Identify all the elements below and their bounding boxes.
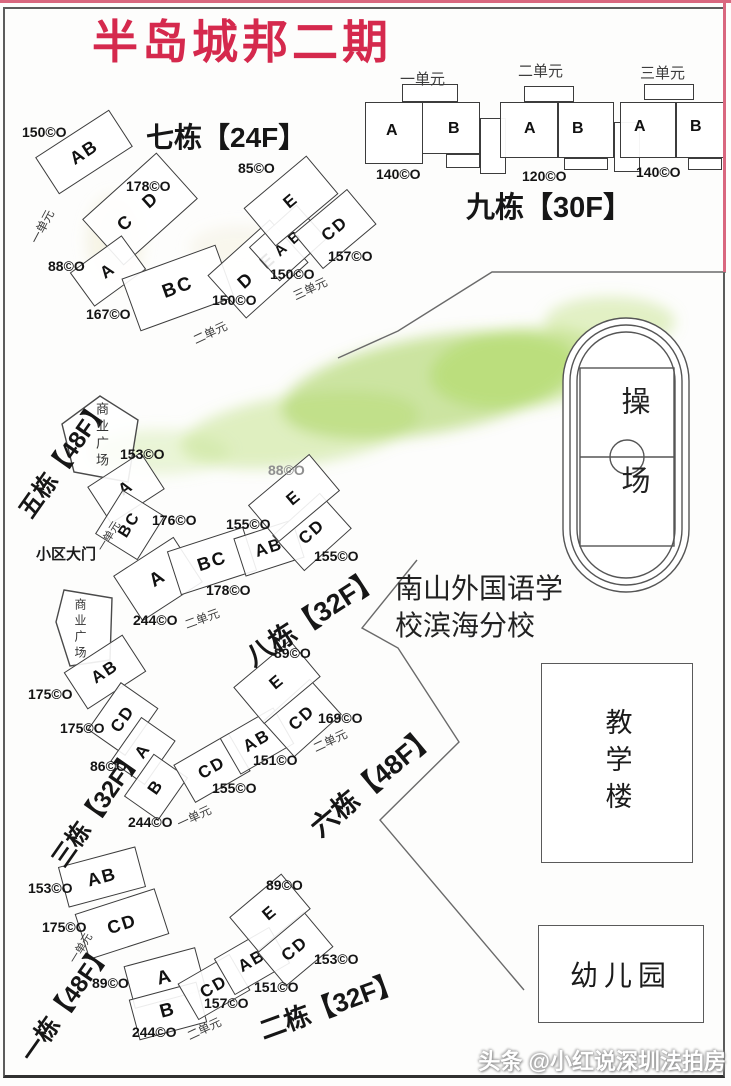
school-name-line2: 校滨海分校 [395,607,563,644]
plaza-label-1: 商业广场 [92,402,111,470]
area-label: 140©O [376,166,421,182]
right-red-line [723,2,726,272]
b7-name: 七栋【24F】 [146,116,306,156]
b9-letter: A [634,118,646,136]
b9-u3-step [688,158,722,170]
area-label: 150©O [212,292,257,308]
area-label: 151©O [254,979,299,995]
b9-letter: B [690,118,702,136]
area-label: 153©O [28,880,73,896]
area-label: 175©O [60,720,105,736]
watermark: 头条 @小红说深圳法拍房 [470,1044,726,1076]
b9-u1-step [446,154,480,168]
plan-title: 半岛城邦二期 [92,6,392,72]
area-label: 155©O [212,780,257,796]
area-label: 244©O [133,612,178,628]
area-label: 88©O [48,258,85,274]
area-label: 169©O [318,710,363,726]
area-label: 153©O [314,951,359,967]
area-label: 175©O [28,686,73,702]
area-label: 176©O [152,512,197,528]
area-label: 89©O [266,877,303,893]
teaching-building: 教学楼 [541,663,693,863]
b9-u2-b [558,102,614,158]
area-label: 85©O [238,160,275,176]
site-plan: 半岛城邦二期 一单元 二单元 三单元 A B A B A B 140©O 120… [0,0,731,1086]
b9-letter: A [386,122,398,140]
b9-letter: B [572,120,584,138]
b9-unit1-label: 一单元 [400,68,445,89]
b9-u3-tab [644,84,694,100]
area-label: 244©O [132,1024,177,1040]
teaching-building-label: 教学楼 [598,708,637,819]
plaza-label-2: 商业广场 [72,598,89,662]
b9-unit2-label: 二单元 [518,60,563,81]
area-label: 167©O [86,306,131,322]
gate-label: 小区大门 [36,543,96,564]
area-label: 244©O [128,814,173,830]
b9-unit3-label: 三单元 [640,62,685,83]
b9-name: 九栋【30F】 [466,184,632,226]
b9-u3-a [620,102,676,158]
area-label: 157©O [328,248,373,264]
area-label: 155©O [314,548,359,564]
area-label: 151©O [253,752,298,768]
b9-u2-tab [524,86,574,102]
area-label: 140©O [636,164,681,180]
b9-letter: B [448,120,460,138]
area-label: 153©O [120,446,165,462]
area-label: 120©O [522,168,567,184]
area-label: 157©O [204,995,249,1011]
area-label: 178©O [206,582,251,598]
school-name: 南山外国语学 校滨海分校 [395,570,563,644]
kindergarten-label: 幼儿园 [570,954,672,994]
b9-u2-step [564,158,608,170]
school-name-line1: 南山外国语学 [395,570,563,607]
area-label: 155©O [226,516,271,532]
top-red-line [0,0,731,3]
b9-letter: A [524,120,536,138]
area-label: 89©O [274,645,311,661]
area-label: 178©O [126,178,171,194]
area-label: 88©O [268,462,305,478]
area-label: 150©O [22,124,67,140]
playground-label: 操场 [612,386,654,544]
kindergarten: 幼儿园 [538,925,704,1023]
